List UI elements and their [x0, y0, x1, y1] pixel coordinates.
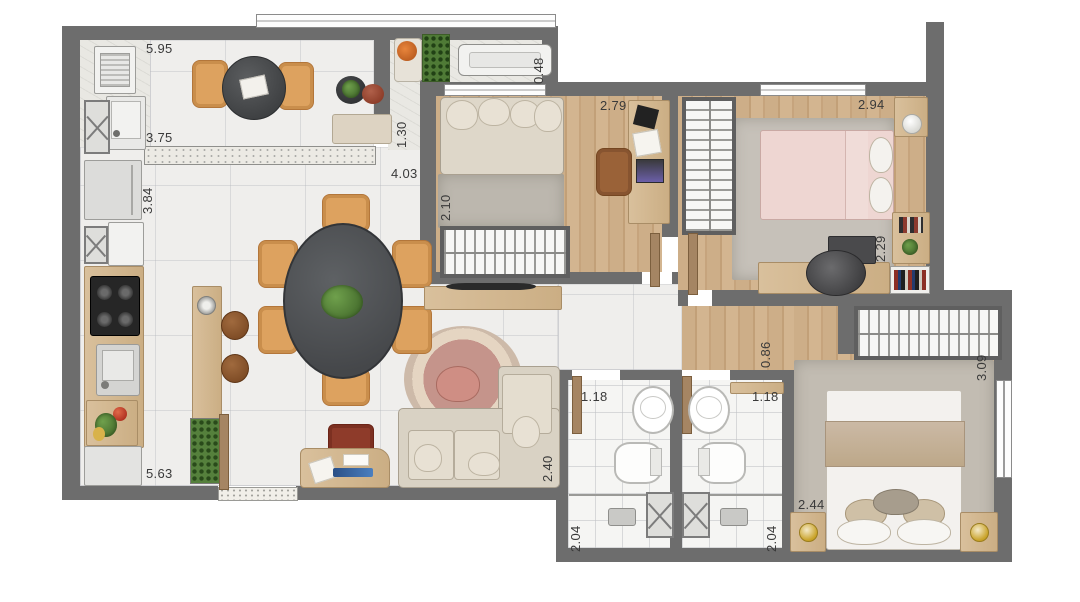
master-wardrobe — [854, 306, 1002, 360]
sofa-pillow-1 — [414, 444, 442, 472]
kitchen-sink — [96, 344, 140, 396]
dining-centerpiece-plant — [321, 285, 363, 319]
bistro-table-book — [239, 75, 269, 100]
desk-laptop — [333, 468, 373, 477]
master-pillow-white-2 — [897, 519, 951, 545]
dim-kitchen-width: 3.75 — [146, 130, 173, 145]
dim-bedroom1-depth: 2.10 — [438, 194, 453, 221]
dim-ac-ledge-depth: 0.48 — [531, 57, 546, 84]
bedroom2-chair — [806, 250, 866, 296]
home-office-desk — [300, 448, 390, 488]
bathroom1-door-leaf — [572, 376, 582, 434]
stove-burner-4 — [118, 312, 133, 327]
refrigerator-door-line — [131, 165, 133, 215]
bathroom1-toilet-tank — [650, 448, 662, 476]
bedroom2-wardrobe — [682, 97, 736, 235]
bar-stool-1 — [221, 311, 249, 340]
balcony-flower-vase — [394, 38, 422, 82]
master-nightstand-left — [790, 512, 826, 552]
dishwasher — [84, 446, 142, 486]
dim-bathroom2-width: 1.18 — [752, 389, 779, 404]
dim-living-width: 4.03 — [391, 166, 418, 181]
bedroom1-pillow-1 — [446, 100, 478, 130]
bedroom2-bookshelf — [890, 266, 930, 294]
bathroom2-toilet — [698, 442, 746, 484]
bar-stool-2 — [221, 354, 249, 383]
bathroom2-sink — [688, 386, 730, 434]
wall-bath-top-b — [620, 370, 682, 380]
hallway-floor-wood — [682, 306, 794, 370]
hallway-floor-marble — [558, 284, 682, 370]
master-window — [996, 380, 1012, 478]
vertical-garden — [190, 418, 220, 484]
dim-balcony-niche-depth: 1.30 — [394, 121, 409, 148]
dim-living-depth: 2.40 — [540, 455, 555, 482]
breakfast-counter — [144, 146, 376, 165]
bedroom1-door-leaf — [650, 233, 660, 287]
dim-living-length: 5.63 — [146, 466, 173, 481]
tv — [446, 283, 536, 290]
duct-shaft-1 — [84, 100, 110, 154]
bedroom1-rug — [438, 174, 564, 228]
stove-burner-3 — [97, 312, 112, 327]
master-lamp-left — [799, 523, 818, 542]
refrigerator — [84, 160, 142, 220]
sofa-pillow-rose — [436, 366, 480, 402]
utility-sink — [106, 96, 146, 150]
master-nightstand-right — [960, 512, 998, 552]
washing-machine — [94, 46, 136, 94]
wall-master-top — [678, 290, 688, 306]
bedroom2-shelf-plant — [902, 239, 918, 255]
bedroom1-pillow-4 — [534, 100, 562, 132]
dim-service-area-width: 5.95 — [146, 41, 173, 56]
dim-bedroom2-depth: 2.29 — [873, 235, 888, 262]
kitchen-sink-faucet — [101, 381, 109, 389]
bedroom2-window — [760, 84, 866, 96]
entrance-doormat — [218, 487, 298, 501]
bathroom1-shaft — [646, 492, 674, 538]
wall-bedroom1-bottom-stub — [672, 272, 678, 284]
wall-bottom-left — [62, 486, 218, 500]
utility-sink-faucet — [113, 130, 120, 137]
bathroom1-sink — [632, 386, 674, 434]
dim-hallway-width: 0.86 — [758, 341, 773, 368]
bedroom2-pillow-1 — [869, 137, 893, 173]
bistro-table — [222, 56, 286, 120]
bedroom2-lamp — [902, 114, 922, 134]
bedroom2-books-row — [894, 270, 926, 290]
cutting-board — [86, 400, 138, 446]
wall-bottom-mid — [296, 486, 568, 500]
balcony-hedge — [422, 34, 450, 82]
bathroom2-shower-head — [720, 508, 748, 526]
dim-bathroom1-depth: 2.04 — [568, 525, 583, 552]
bathroom1-shower-head — [608, 508, 636, 526]
dim-bedroom2-width: 2.94 — [858, 97, 885, 112]
bedroom2-door-leaf — [688, 233, 698, 295]
bathroom2-toilet-tank — [698, 448, 710, 476]
bathroom2-shaft — [682, 492, 710, 538]
dim-master-wardrobe-width: 3.09 — [974, 354, 989, 381]
bedroom1-window — [444, 84, 546, 96]
master-bed-blanket — [825, 421, 965, 467]
sofa-pillow-2 — [468, 452, 500, 476]
master-lamp-right — [970, 523, 989, 542]
wall-master-wardrobe-stub — [838, 306, 854, 354]
kitchen-top-window — [256, 14, 556, 28]
bedroom1-desk-notebook — [633, 105, 659, 130]
wall-bottom-right — [556, 548, 1012, 562]
stove — [90, 276, 140, 336]
master-pillow-gray — [873, 489, 919, 515]
dim-master-bed-width: 2.44 — [798, 497, 825, 512]
bedroom2-side-shelf — [892, 212, 930, 264]
bedroom1-chair — [596, 148, 632, 196]
wall-left — [62, 26, 80, 500]
side-pot-red — [362, 84, 384, 104]
washing-machine-drum — [100, 53, 130, 87]
wall-bath-top-c — [730, 370, 794, 380]
bedroom2-bed — [760, 130, 894, 220]
side-planter-dark — [336, 76, 366, 104]
bathroom1-toilet — [614, 442, 662, 484]
duct-shaft-2 — [84, 226, 108, 264]
dim-bathroom2-depth: 2.04 — [764, 525, 779, 552]
bedroom2-bed-fold — [845, 131, 868, 219]
bedroom2-shelf-books — [899, 217, 923, 233]
master-pillow-white-1 — [837, 519, 891, 545]
bedroom1-desk — [628, 100, 670, 224]
floor-plan: 5.95 3.75 3.84 1.30 4.03 0.48 2.79 2.10 … — [0, 0, 1080, 602]
dim-bedroom1-width: 2.79 — [600, 98, 627, 113]
entrance-door-leaf — [219, 414, 229, 490]
bedroom1-desk-laptop — [636, 159, 664, 183]
stove-burner-2 — [118, 285, 133, 300]
dining-table — [283, 223, 403, 379]
island-faucet — [197, 296, 216, 315]
sofa-pillow-3 — [512, 416, 540, 448]
bedroom1-pillow-2 — [478, 98, 510, 126]
kitchen-cabinet-top — [108, 222, 144, 266]
wall-top — [62, 26, 558, 40]
bedroom2-pillow-2 — [869, 177, 893, 213]
bedroom1-wardrobe — [440, 226, 570, 278]
desk-card — [343, 454, 369, 466]
dim-kitchen-depth: 3.84 — [140, 187, 155, 214]
master-bed — [826, 390, 962, 550]
console-bench — [332, 114, 392, 144]
kitchen-sink-basin — [102, 350, 134, 381]
side-planter-plant — [342, 80, 360, 98]
stove-burner-1 — [97, 285, 112, 300]
vegetables-yellow — [93, 427, 105, 441]
bedroom1-desk-paper — [632, 129, 662, 157]
dim-bathroom1-width: 1.18 — [581, 389, 608, 404]
balcony-flowers — [397, 41, 417, 61]
bedroom2-nightstand — [894, 97, 928, 137]
